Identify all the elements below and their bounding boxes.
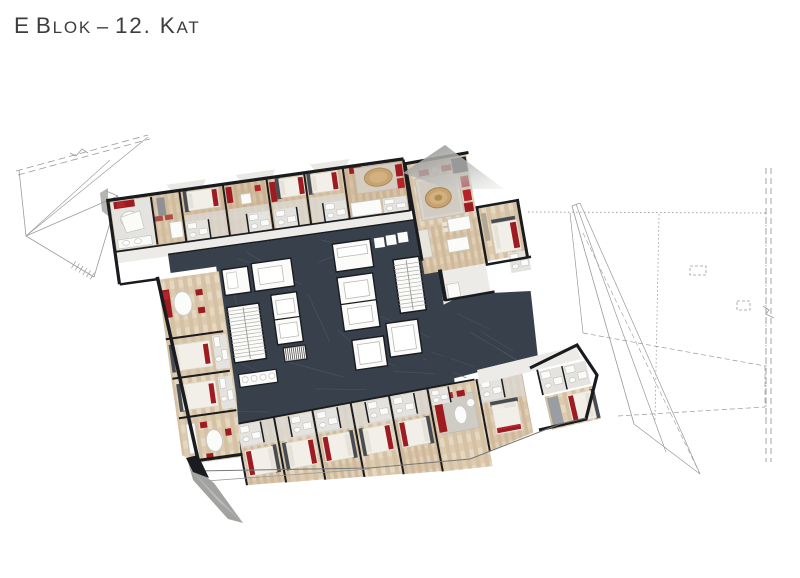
svg-text:EBLOK–12. KAT: EBLOK–12. KAT <box>14 13 201 38</box>
